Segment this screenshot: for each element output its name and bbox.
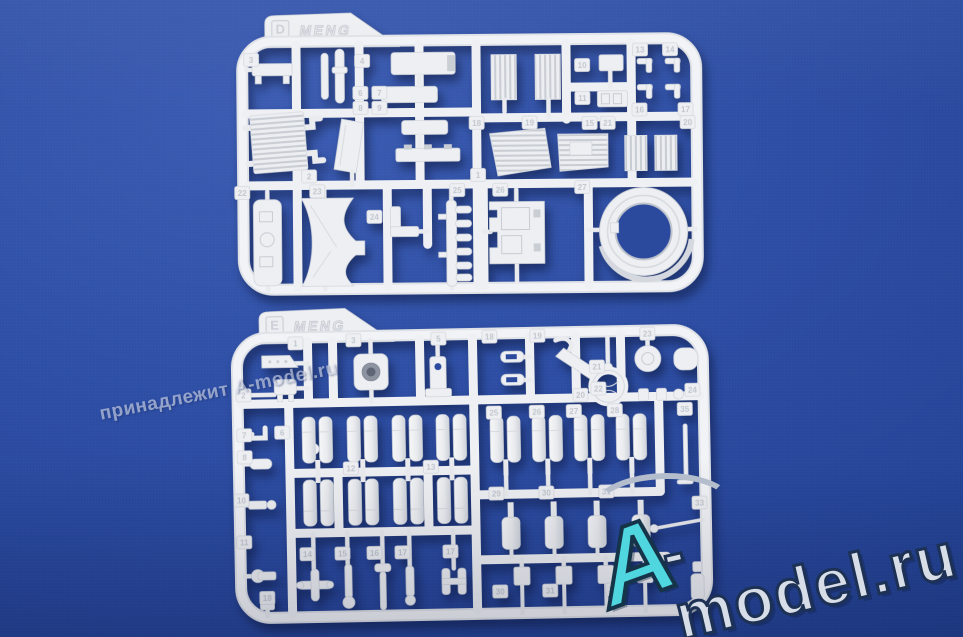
photo-of-model-sprues: D MENG	[0, 0, 963, 637]
